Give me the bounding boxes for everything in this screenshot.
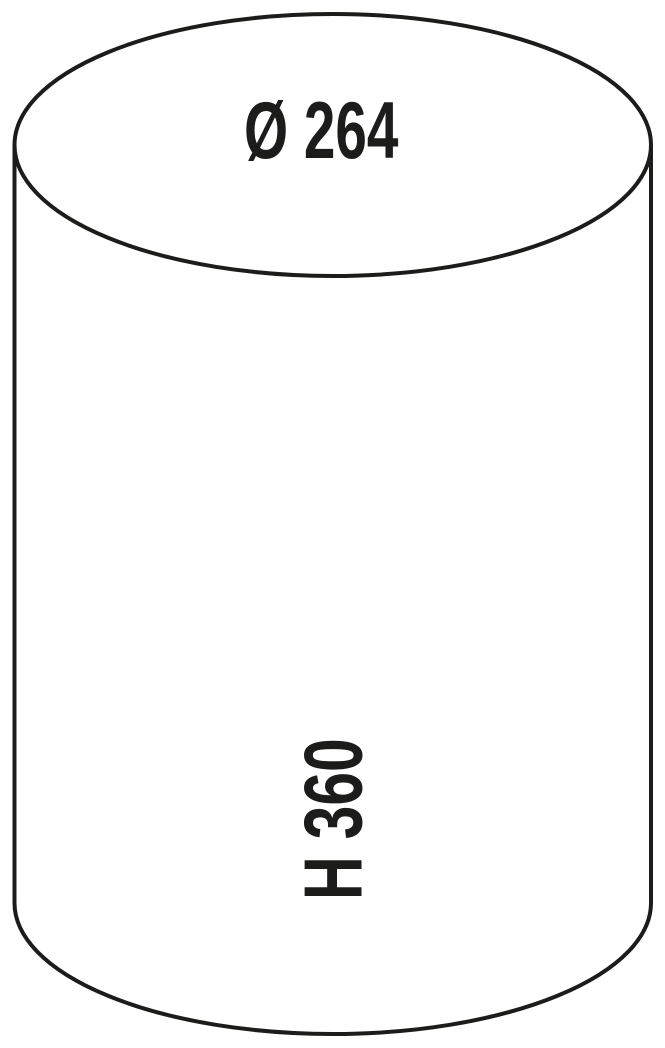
svg-text:Ø 264: Ø 264 <box>244 85 399 175</box>
svg-text:H 360: H 360 <box>287 738 379 900</box>
